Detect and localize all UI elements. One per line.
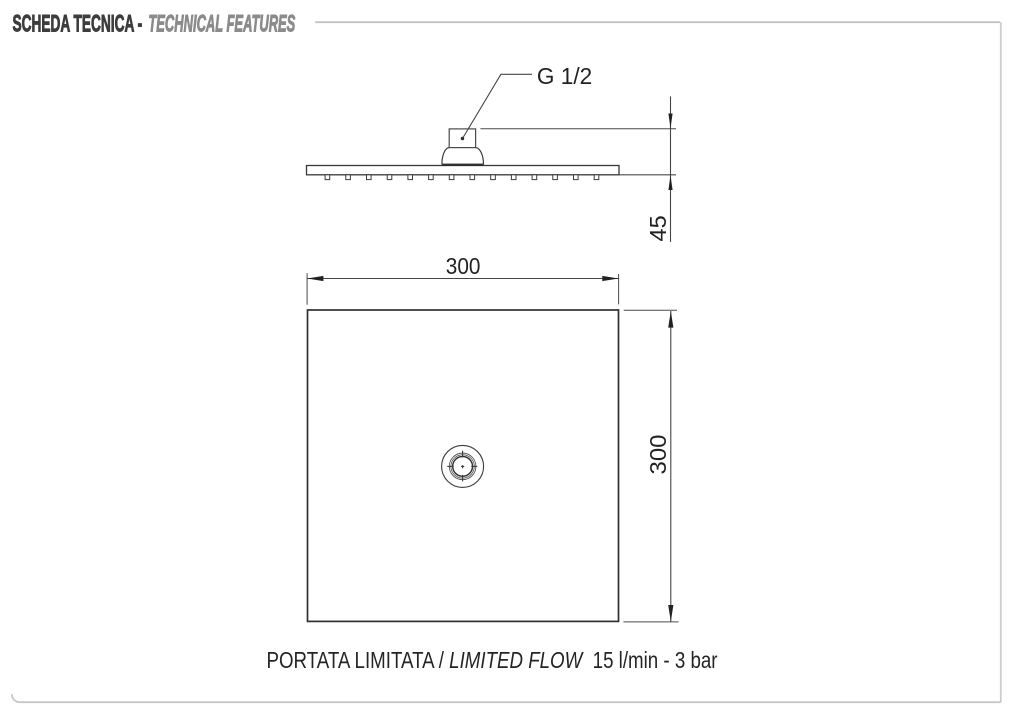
svg-text:TECHNICAL FEATURES: TECHNICAL FEATURES xyxy=(148,12,295,38)
svg-text:45: 45 xyxy=(645,215,671,241)
svg-text:300: 300 xyxy=(645,435,671,475)
svg-text:G 1/2: G 1/2 xyxy=(537,63,592,89)
svg-text:SCHEDA TECNICA -: SCHEDA TECNICA - xyxy=(13,12,143,38)
svg-text:300: 300 xyxy=(446,253,481,279)
svg-text:PORTATA LIMITATA / LIMITED FLO: PORTATA LIMITATA / LIMITED FLOW 15 l/min… xyxy=(267,647,718,673)
